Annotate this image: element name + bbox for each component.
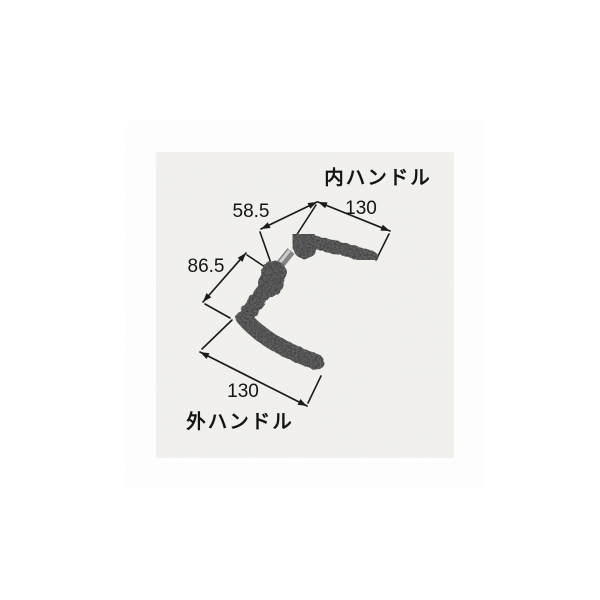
inner-handle-label: 内ハンドル [324, 166, 432, 189]
dim-inner-length-value: 130 [345, 198, 377, 219]
product-diagram-page: 58.5 130 86.5 130 [0, 0, 600, 600]
outer-handle-label: 外ハンドル [186, 410, 294, 433]
dim-outer-offset-value: 86.5 [188, 256, 225, 277]
dim-inner-offset-value: 58.5 [233, 201, 270, 222]
dim-outer-length-value: 130 [227, 381, 259, 402]
handle-dimension-diagram: 58.5 130 86.5 130 [0, 0, 600, 600]
